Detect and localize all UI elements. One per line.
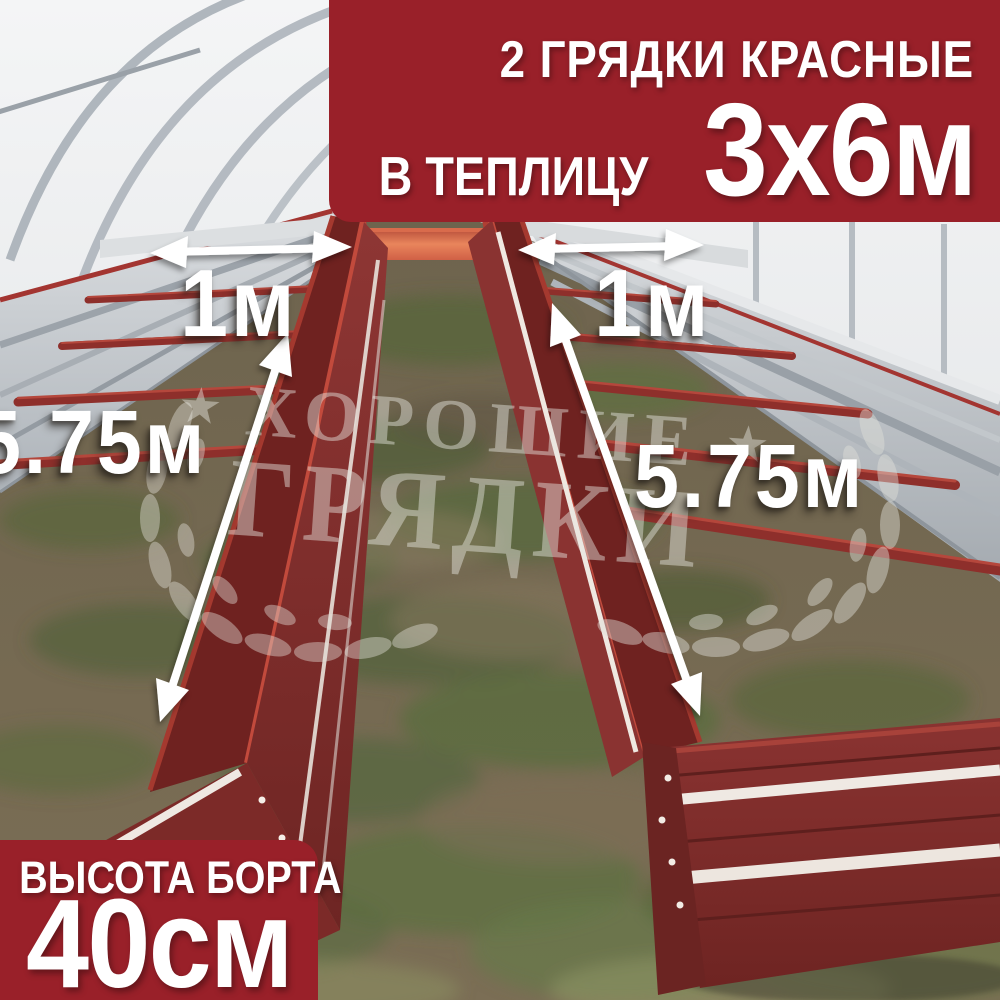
label-bed-length-left: 5.75м	[0, 398, 207, 488]
label-bed-length-right: 5.75м	[634, 432, 865, 522]
label-bed-width-left: 1м	[180, 256, 297, 352]
label-bed-width-right: 1м	[594, 256, 711, 352]
bottom-banner-value: 40см	[16, 887, 302, 1000]
bottom-banner: ВЫСОТА БОРТА 40см	[0, 840, 318, 1000]
top-banner: 2 ГРЯДКИ КРАСНЫЕ В ТЕПЛИЦУ 3х6м	[329, 0, 1000, 222]
top-banner-size-value: 3х6м	[703, 89, 976, 210]
top-banner-line2: В ТЕПЛИЦУ 3х6м	[331, 89, 976, 210]
product-image: ★ ХОРОШИЕ ★ ГРЯДКИ	[0, 0, 1000, 1000]
top-banner-line2-label: В ТЕПЛИЦУ	[378, 144, 648, 208]
